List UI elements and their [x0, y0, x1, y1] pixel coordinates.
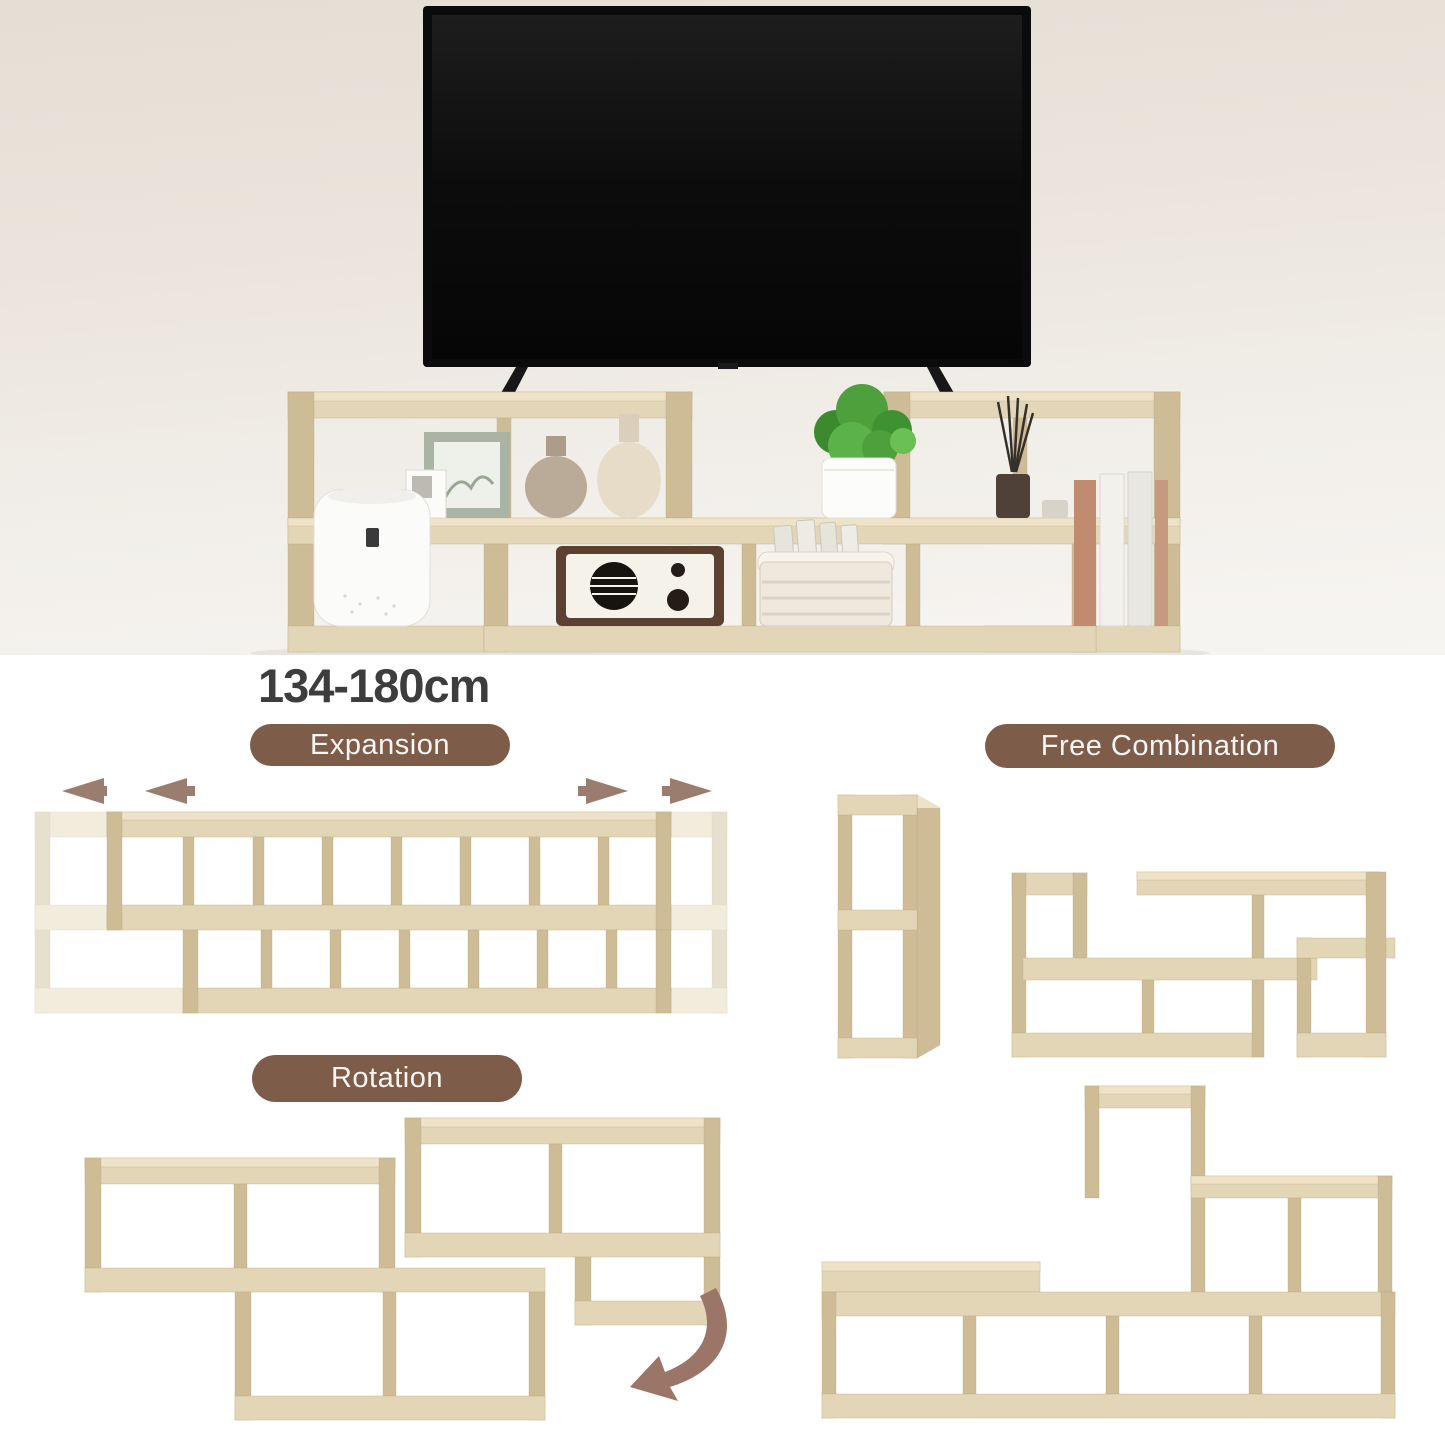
- retro-radio: [556, 546, 724, 626]
- scented-candle: [1042, 500, 1068, 518]
- expansion-diagram: [35, 778, 727, 1013]
- rotation-unit-right: [405, 1118, 720, 1325]
- expansion-ghost-right: [671, 812, 727, 1013]
- rotation-diagram: [85, 1118, 727, 1420]
- air-purifier: [314, 488, 430, 626]
- expand-left-arrows-icon: [62, 778, 195, 804]
- hero-photo: [0, 0, 1445, 655]
- tetris-combination-diagram: [1012, 872, 1395, 1057]
- tv-ir-nub: [718, 363, 738, 369]
- small-vase: [525, 436, 587, 518]
- vertical-unit-diagram: [838, 795, 940, 1058]
- badge-expansion: Expansion: [250, 724, 510, 766]
- badge-rotation: Rotation: [252, 1055, 522, 1102]
- tv: [423, 6, 1031, 400]
- diagram-scene: [0, 655, 1445, 1445]
- rotation-unit-left: [85, 1158, 545, 1420]
- badge-free-combination: Free Combination: [985, 724, 1335, 768]
- tall-vase: [597, 414, 661, 518]
- product-listing-image: 134-180cm Expansion Free Combination Rot…: [0, 0, 1445, 1445]
- hero-scene: [0, 0, 1445, 655]
- expand-right-arrows-icon: [578, 778, 712, 804]
- tv-screen: [432, 15, 1022, 359]
- stepped-combination-diagram: [822, 1086, 1395, 1418]
- feature-diagrams: [0, 655, 1445, 1445]
- dimension-label: 134-180cm: [258, 658, 558, 710]
- expansion-shelf: [107, 812, 671, 1013]
